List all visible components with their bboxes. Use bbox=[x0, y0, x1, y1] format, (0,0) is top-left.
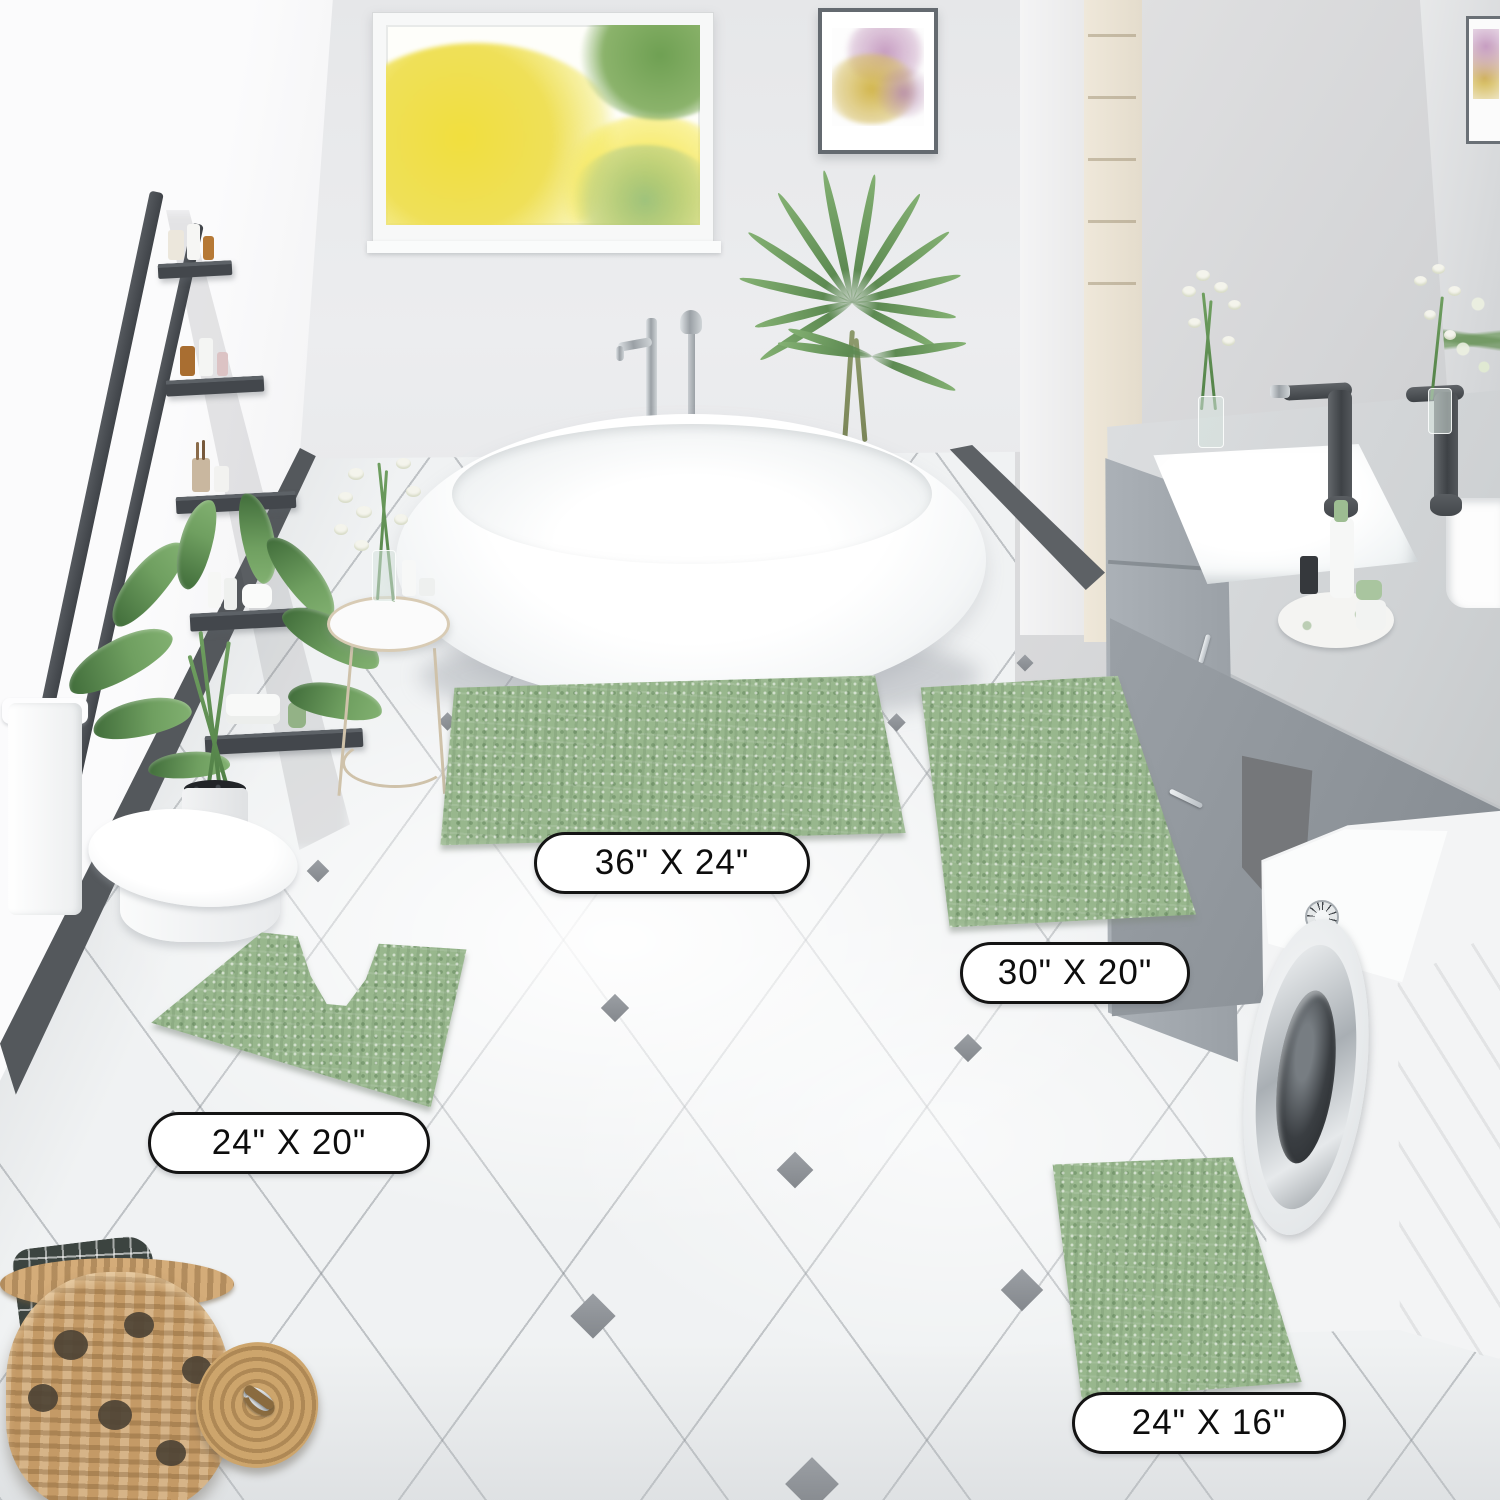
basket-dot bbox=[98, 1400, 132, 1430]
white-blossom bbox=[1432, 264, 1445, 274]
cosmetic-jar bbox=[419, 578, 435, 596]
flower-vase bbox=[1198, 396, 1224, 448]
bottle bbox=[224, 578, 237, 610]
cabinet-shelf-line bbox=[1088, 34, 1136, 37]
white-blossom bbox=[394, 514, 408, 525]
dark-cosmetic-bottle bbox=[1300, 556, 1318, 594]
size-label-24x16: 24" X 16" bbox=[1072, 1392, 1346, 1454]
washing-machine-side bbox=[1390, 920, 1500, 1370]
bathtub-opening bbox=[452, 424, 932, 564]
mirror-art-reflection bbox=[1466, 16, 1500, 144]
white-blossom bbox=[1182, 286, 1196, 297]
rug-24x16 bbox=[1042, 1152, 1307, 1402]
white-blossom bbox=[1228, 300, 1241, 310]
basket-dot bbox=[28, 1384, 58, 1412]
white-blossom bbox=[1448, 286, 1461, 296]
cosmetic-bottle bbox=[402, 560, 416, 596]
basket-dot bbox=[54, 1330, 88, 1360]
rug-pile bbox=[148, 925, 473, 1113]
rug-36x24 bbox=[438, 672, 908, 847]
side-table bbox=[327, 596, 450, 652]
basket-dot bbox=[156, 1440, 186, 1466]
pump-top bbox=[1334, 500, 1348, 522]
white-blossom bbox=[1214, 282, 1228, 293]
cream-jar bbox=[1356, 600, 1386, 630]
lotion-bottle bbox=[1330, 518, 1354, 598]
white-blossom bbox=[354, 540, 369, 551]
white-blossom bbox=[1414, 276, 1427, 286]
size-label-24x20: 24" X 20" bbox=[148, 1112, 430, 1174]
cabinet-shelf-line bbox=[1088, 282, 1136, 285]
cabinet-shelf-line bbox=[1088, 220, 1136, 223]
rug-30x20 bbox=[912, 672, 1202, 930]
white-blossom bbox=[1188, 318, 1201, 328]
white-blossom bbox=[1424, 310, 1436, 320]
flower-vase bbox=[1428, 388, 1452, 434]
size-label-text: 30" X 20" bbox=[998, 953, 1153, 993]
sink-faucet bbox=[1328, 390, 1352, 508]
white-blossom bbox=[356, 506, 372, 518]
white-blossom bbox=[1196, 270, 1210, 281]
towel-stack bbox=[226, 694, 280, 724]
soap-bar bbox=[1356, 580, 1382, 600]
bottle bbox=[187, 224, 200, 260]
size-label-30x20: 30" X 20" bbox=[960, 942, 1190, 1004]
white-blossom bbox=[1444, 330, 1456, 340]
wall-art-painting bbox=[832, 28, 924, 126]
rug-contour-24x20 bbox=[148, 925, 473, 1113]
sink-faucet-tip bbox=[1270, 385, 1290, 398]
makeup-brush bbox=[202, 440, 205, 460]
rug-pile bbox=[438, 672, 908, 847]
rug-pile bbox=[1042, 1152, 1307, 1402]
bottle bbox=[208, 572, 221, 608]
size-label-text: 36" X 24" bbox=[595, 843, 750, 883]
table-ring bbox=[342, 738, 448, 788]
wall-art-frame bbox=[818, 8, 938, 154]
window-sill bbox=[367, 241, 721, 253]
rolled-towel bbox=[242, 584, 272, 608]
size-label-36x24: 36" X 24" bbox=[534, 832, 810, 894]
size-label-text: 24" X 16" bbox=[1132, 1403, 1287, 1443]
cosmetic-bottle bbox=[217, 352, 228, 376]
cabinet-shelf-line bbox=[1088, 158, 1136, 161]
white-blossom bbox=[396, 458, 411, 469]
paint-blob bbox=[1473, 29, 1499, 99]
white-blossom bbox=[334, 524, 348, 535]
cabinet-shelf-line bbox=[1088, 96, 1136, 99]
white-blossom bbox=[1222, 336, 1235, 346]
window-view bbox=[386, 25, 700, 225]
size-label-text: 24" X 20" bbox=[212, 1123, 367, 1163]
window bbox=[372, 12, 714, 242]
basket-dot bbox=[124, 1312, 154, 1338]
brush-cup bbox=[192, 458, 210, 492]
hand-shower-head bbox=[680, 310, 702, 334]
white-blossom bbox=[348, 468, 364, 480]
white-blossom bbox=[406, 486, 421, 497]
tub-faucet-nozzle bbox=[616, 346, 624, 361]
toilet-tank bbox=[8, 703, 82, 915]
makeup-brush bbox=[196, 442, 199, 460]
glass-jar bbox=[168, 230, 184, 260]
wicker-basket bbox=[6, 1272, 230, 1500]
pump-bottle bbox=[199, 338, 213, 376]
sink-faucet-base bbox=[1430, 494, 1462, 516]
flower-vase bbox=[372, 550, 396, 602]
amber-bottle bbox=[203, 236, 214, 260]
white-blossom bbox=[338, 492, 353, 503]
bathroom-product-photo: 36" X 24" 30" X 20" 24" X 20" 24" X 16" bbox=[0, 0, 1500, 1500]
jar bbox=[214, 466, 229, 492]
rug-pile bbox=[912, 672, 1202, 930]
amber-bottle bbox=[180, 346, 195, 376]
